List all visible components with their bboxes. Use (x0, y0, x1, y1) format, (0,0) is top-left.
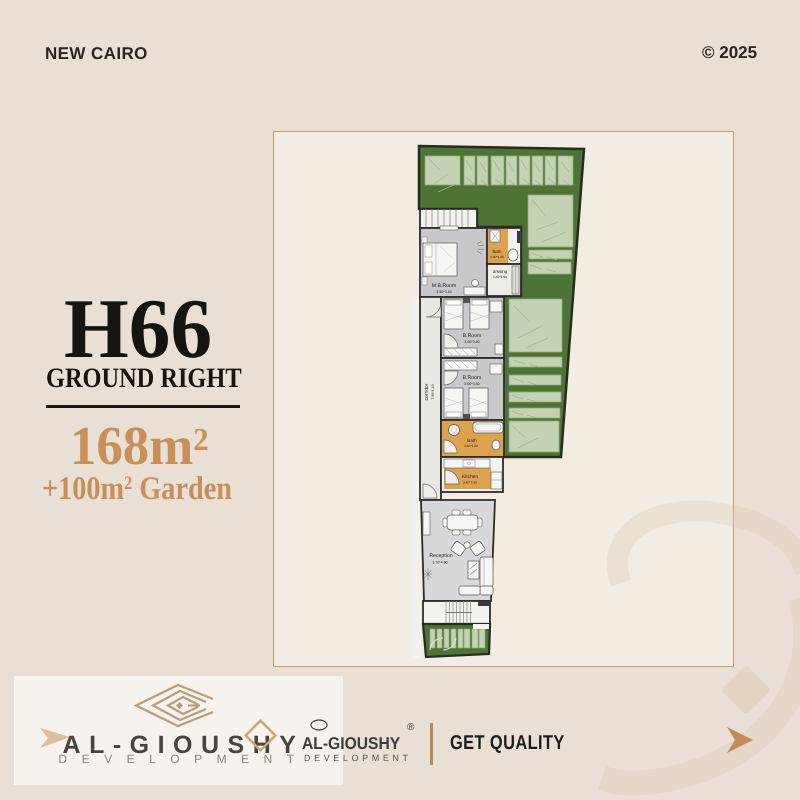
svg-text:M.B.Room: M.B.Room (432, 283, 457, 289)
svg-text:3.40*2.55: 3.40*2.55 (463, 481, 477, 485)
svg-text:1.90*1.85: 1.90*1.85 (490, 255, 504, 259)
svg-text:3.90*3.40: 3.90*3.40 (436, 290, 451, 294)
svg-text:Kitchen: Kitchen (462, 474, 478, 480)
svg-text:Bath: Bath (467, 438, 477, 443)
svg-text:Reception: Reception (429, 553, 452, 559)
svg-text:B.Room: B.Room (463, 375, 482, 381)
svg-text:corridor: corridor (424, 383, 430, 400)
svg-text:Bath: Bath (492, 249, 502, 254)
svg-text:3.60*1.90: 3.60*1.90 (464, 444, 478, 448)
svg-text:3.60*3.50: 3.60*3.50 (464, 382, 479, 386)
svg-text:drssing: drssing (493, 269, 508, 274)
svg-text:B.Room: B.Room (463, 333, 482, 339)
svg-text:7.90*1.10: 7.90*1.10 (431, 384, 435, 399)
svg-text:5.70*4.90: 5.70*4.90 (433, 561, 448, 565)
svg-text:1.65*1.90: 1.65*1.90 (493, 275, 507, 279)
svg-text:3.60*3.40: 3.60*3.40 (464, 340, 479, 344)
